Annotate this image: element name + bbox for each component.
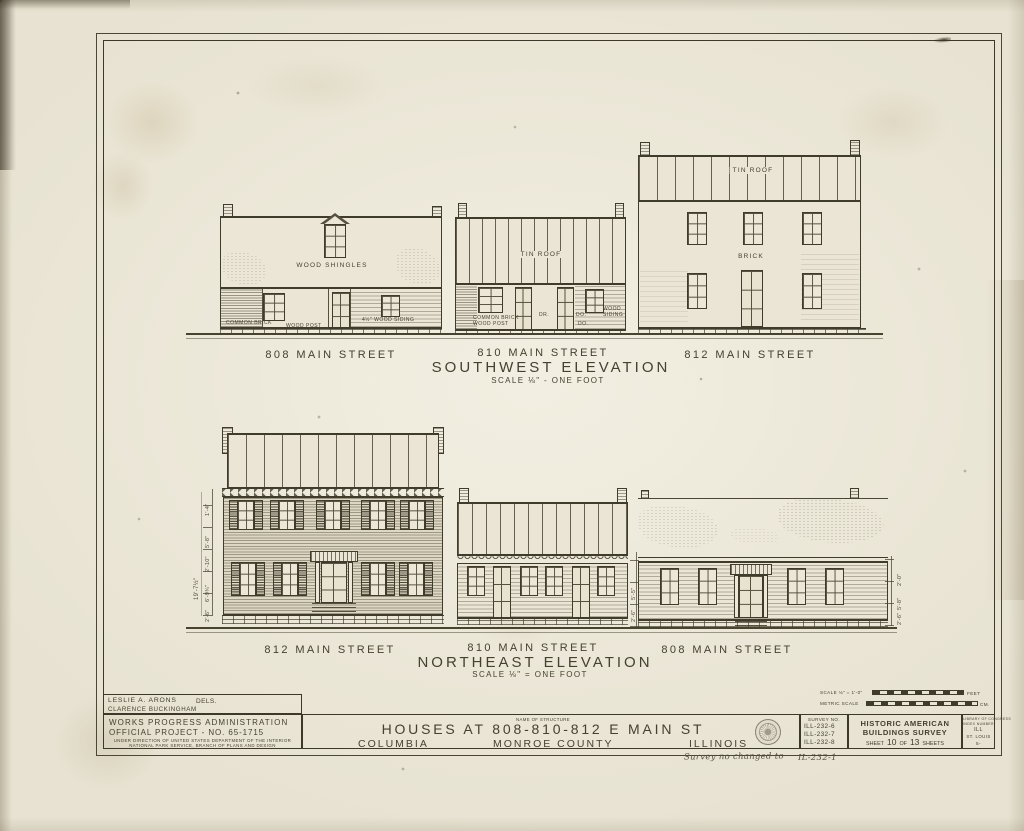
annotation-wood-siding: 4½" WOOD SIDING [362, 317, 414, 323]
scan-shading [640, 270, 688, 322]
dimension-line [212, 489, 213, 616]
ne-house-810 [457, 488, 629, 628]
door-side-trim [763, 575, 768, 618]
shuttered-window [273, 562, 307, 596]
annotation-do: DO. [578, 321, 588, 327]
window [597, 566, 615, 596]
roof-ridge-line [638, 498, 888, 499]
ne-house-808 [638, 488, 888, 630]
chimney [640, 142, 650, 156]
structure-city: COLUMBIA [358, 738, 429, 750]
survey-number-box: SURVEY NO. ILL-232-6 ILL-232-7 ILL-232-8 [800, 714, 848, 749]
wood-post [328, 289, 329, 327]
ne-house-812 [222, 427, 444, 627]
dimension-label: 5'-5" [631, 588, 637, 600]
structure-county: MONROE COUNTY [493, 738, 614, 750]
window [369, 562, 387, 596]
window [743, 212, 763, 245]
tin-roof [638, 155, 861, 201]
dimension-label: 2'-0" [897, 574, 903, 586]
window [239, 562, 257, 596]
wpa-line-2: OFFICIAL PROJECT - NO. 65-1715 [109, 728, 264, 737]
survey-number: ILL-232-8 [804, 739, 835, 746]
foundation [220, 328, 442, 334]
ne-label-812: 812 MAIN STREET [264, 644, 395, 656]
door [557, 287, 574, 330]
window [698, 568, 717, 605]
window [407, 562, 425, 596]
window [324, 500, 342, 530]
window [467, 566, 485, 596]
dimension-label: 19'-7½" [194, 578, 200, 600]
delineators-role: DELS. [196, 698, 217, 705]
wpa-line-4: NATIONAL PARK SERVICE, BRANCH OF PLANS A… [104, 743, 301, 748]
sheet-word: SHEET [866, 741, 884, 747]
dimension-label: 5'-8" [897, 598, 903, 610]
annotation-common-brick: COMMON BRICK [226, 320, 272, 326]
shuttered-window [361, 562, 395, 596]
scan-edge-shadow [0, 0, 130, 9]
handwritten-note: Survey no changed to [684, 751, 784, 762]
wpa-box: WORKS PROGRESS ADMINISTRATION OFFICIAL P… [103, 714, 302, 749]
entrance-door [739, 575, 763, 618]
foundation [638, 620, 888, 627]
index-value-2: ST. LOUIS [963, 734, 994, 739]
shuttered-window [316, 500, 350, 530]
shuttered-window [400, 500, 434, 530]
tin-roof [227, 433, 439, 488]
sw-elevation-title: SOUTHWEST ELEVATION [432, 359, 671, 376]
sheet-total: 13 [910, 737, 919, 747]
index-label-1: LIBRARY OF CONGRESS [963, 717, 994, 721]
annotation-tin-roof: TIN ROOF [730, 167, 777, 174]
survey-number: ILL-232-6 [804, 723, 835, 730]
structure-title: HOUSES AT 808-810-812 E MAIN ST [303, 721, 799, 737]
dimension-label: 2'-6" [897, 613, 903, 625]
scalloped-frieze [457, 555, 628, 563]
shingle-sketch [730, 528, 780, 544]
shuttered-window [270, 500, 304, 530]
handwritten-survey-number: IL-232-1 [798, 753, 837, 763]
delineator-name: LESLIE A. ARONS [108, 697, 177, 704]
habs-box: HISTORIC AMERICAN BUILDINGS SURVEY SHEET… [848, 714, 962, 749]
dimension-ticks [885, 556, 894, 626]
metric-scale-label: METRIC SCALE [820, 701, 859, 706]
annotation-wood-post: WOOD POST [473, 321, 509, 327]
index-value-3: 5- [963, 741, 994, 746]
dormer-window [324, 224, 346, 258]
porch-entablature [310, 551, 358, 562]
foundation [455, 330, 626, 335]
entrance-door [321, 562, 347, 603]
door [332, 292, 350, 328]
survey-number-label: SURVEY NO. [801, 717, 847, 722]
structure-state: ILLINOIS [689, 738, 748, 750]
window [660, 568, 679, 605]
chimney [850, 140, 860, 156]
structure-title-box: NAME OF STRUCTURE HOUSES AT 808-810-812 … [302, 714, 800, 749]
window [263, 293, 285, 321]
scale-bar-metric [866, 701, 978, 706]
foundation [222, 615, 444, 624]
porch-pilaster [348, 562, 353, 603]
window [478, 287, 503, 313]
annotation-tin-roof: TIN ROOF [518, 251, 565, 258]
habs-drawing-sheet: WOOD SHINGLES COMMON BRICK WOOD POST 4½"… [0, 0, 1024, 831]
index-number-box: LIBRARY OF CONGRESS INDEX NUMBER ILL ST.… [962, 714, 995, 749]
delineator-name: CLARENCE BUCKINGHAM [108, 706, 197, 713]
window [585, 289, 604, 313]
annotation-siding: SIDING [603, 312, 623, 318]
sheet-number: 10 [887, 737, 896, 747]
foundation [638, 328, 866, 334]
habs-line-1: HISTORIC AMERICAN [849, 719, 961, 728]
dimension-line [201, 492, 202, 616]
scale-bar-label: SCALE ⅛" = 1'-0" [820, 690, 863, 695]
window [237, 500, 255, 530]
delineators-box: LESLIE A. ARONS CLARENCE BUCKINGHAM DELS… [103, 694, 302, 714]
window [825, 568, 844, 605]
shingle-sketch [638, 506, 718, 548]
sheet-word: SHEETS [922, 741, 944, 747]
annotation-wood-shingles: WOOD SHINGLES [296, 262, 367, 269]
window [687, 212, 707, 245]
shuttered-window [229, 500, 263, 530]
ne-label-808: 808 MAIN STREET [661, 644, 792, 656]
ne-scale-note: SCALE ⅛" = ONE FOOT [472, 670, 587, 679]
door-head-trim [730, 564, 772, 575]
scale-bar-feet-unit: FEET [967, 691, 980, 696]
sheet-count-line: SHEET 10 OF 13 SHEETS [849, 737, 961, 747]
habs-line-2: BUILDINGS SURVEY [849, 728, 961, 737]
door [493, 566, 511, 618]
index-label-2: INDEX NUMBER [963, 722, 994, 726]
dimension-label: 2'-6" [205, 610, 211, 622]
dimension-label: 2'-6" [631, 610, 637, 622]
annotation-brick: BRICK [738, 253, 764, 260]
window [687, 273, 707, 309]
window [520, 566, 538, 596]
window [802, 273, 822, 309]
sw-label-808: 808 MAIN STREET [265, 349, 396, 361]
scale-bar-feet [872, 690, 964, 695]
dimension-label: 1'-4" [205, 504, 211, 516]
door [741, 270, 763, 327]
wpa-line-1: WORKS PROGRESS ADMINISTRATION [109, 718, 288, 727]
sw-label-810: 810 MAIN STREET [477, 347, 608, 359]
door [515, 287, 532, 330]
window [408, 500, 426, 530]
window [278, 500, 296, 530]
shingle-sketch [778, 499, 884, 543]
sw-label-812: 812 MAIN STREET [684, 349, 815, 361]
window [281, 562, 299, 596]
window [381, 295, 400, 317]
dimension-label: 5'-8" [205, 536, 211, 548]
annotation-dr: DR. [539, 312, 549, 318]
foundation [457, 618, 628, 625]
metric-scale-unit: CM. [980, 702, 990, 707]
sheet-of: OF [899, 741, 907, 747]
index-value-1: ILL [963, 727, 994, 733]
porch-pilaster [315, 562, 320, 603]
dimension-label: 2'-10" [205, 556, 211, 572]
survey-number: ILL-232-7 [804, 731, 835, 738]
federal-seal-stamp [755, 719, 781, 745]
shuttered-window [399, 562, 433, 596]
dimension-label: 6'-9¾" [205, 585, 211, 602]
sw-house-810: TIN ROOF DR. DO. DO. COMMON BRICK WOOD P… [455, 200, 627, 340]
window [787, 568, 806, 605]
scan-edge-shadow [0, 0, 16, 170]
door [572, 566, 590, 618]
shuttered-window [361, 500, 395, 530]
sw-scale-note: SCALE ⅛" - ONE FOOT [491, 376, 604, 385]
zigzag-frieze [222, 488, 444, 497]
window [369, 500, 387, 530]
sw-house-808: WOOD SHINGLES COMMON BRICK WOOD POST 4½"… [220, 204, 443, 335]
ground-line-ne-2 [186, 632, 897, 633]
ne-elevation-title: NORTHEAST ELEVATION [417, 654, 652, 671]
annotation-do: DO. [576, 312, 586, 318]
sw-house-812: TIN ROOF BRICK [638, 140, 862, 334]
tin-roof [457, 502, 628, 555]
window [545, 566, 563, 596]
shuttered-window [231, 562, 265, 596]
window [802, 212, 822, 245]
wood-post [350, 289, 351, 327]
ne-label-810: 810 MAIN STREET [467, 642, 598, 654]
